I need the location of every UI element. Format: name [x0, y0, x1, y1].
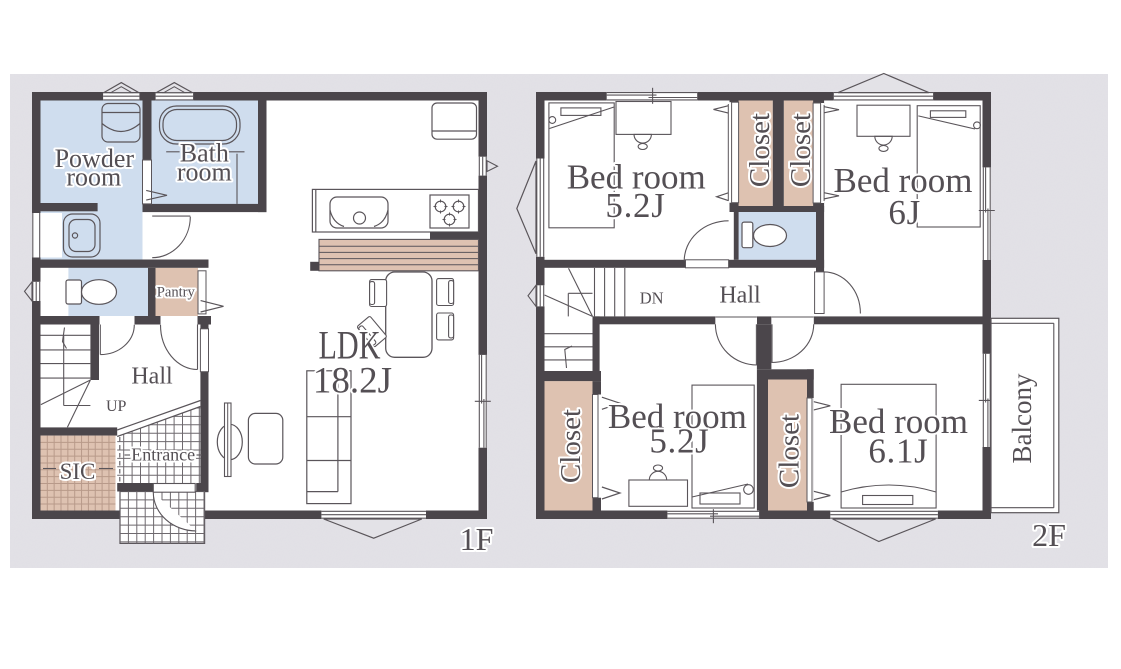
- svg-text:6.1J: 6.1J: [868, 432, 928, 471]
- svg-text:DN: DN: [640, 289, 664, 308]
- svg-text:Closet: Closet: [785, 113, 817, 187]
- svg-text:UP: UP: [106, 398, 127, 415]
- svg-text:room: room: [66, 163, 121, 192]
- svg-text:Pantry: Pantry: [157, 285, 196, 301]
- svg-text:5.2J: 5.2J: [649, 422, 709, 461]
- svg-text:2F: 2F: [1032, 517, 1066, 553]
- svg-text:SIC: SIC: [60, 459, 96, 484]
- svg-text:6J: 6J: [888, 193, 921, 232]
- svg-text:Closet: Closet: [774, 414, 806, 488]
- svg-text:Balcony: Balcony: [1007, 373, 1037, 463]
- svg-text:Hall: Hall: [131, 364, 173, 390]
- svg-text:Entrance: Entrance: [131, 445, 195, 465]
- svg-text:Closet: Closet: [555, 409, 587, 483]
- svg-text:room: room: [177, 158, 232, 187]
- svg-text:1F: 1F: [460, 521, 494, 557]
- svg-text:Hall: Hall: [719, 283, 761, 309]
- svg-text:5.2J: 5.2J: [605, 186, 665, 225]
- svg-text:18.2J: 18.2J: [313, 361, 392, 402]
- svg-text:Closet: Closet: [744, 113, 776, 187]
